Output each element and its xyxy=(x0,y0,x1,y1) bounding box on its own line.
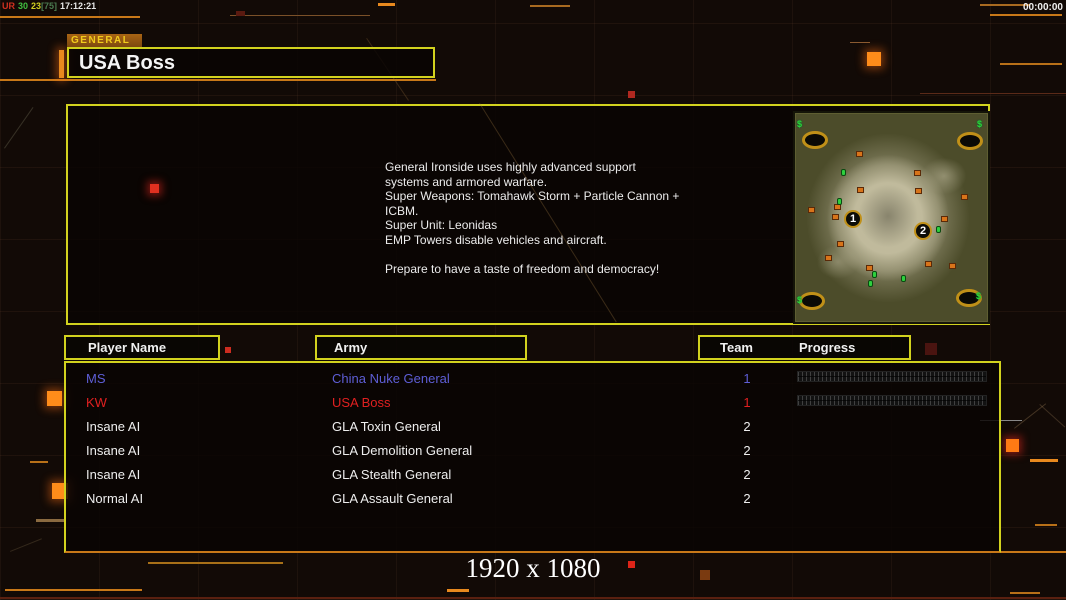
money-icon: $ xyxy=(797,296,802,305)
general-briefing-text: General Ironside uses highly advanced su… xyxy=(385,160,730,277)
army-cell: GLA Demolition General xyxy=(332,443,472,458)
deco-line xyxy=(1010,592,1040,594)
tech-building-icon xyxy=(872,271,877,278)
supply-building-icon xyxy=(857,187,864,193)
deco-square xyxy=(628,91,635,98)
player-rows: MS China Nuke General 1 KW USA Boss 1 In… xyxy=(66,363,999,551)
deco-square xyxy=(225,347,231,353)
start-position-oval xyxy=(802,131,828,149)
match-timer: 00:00:00 xyxy=(1023,2,1063,13)
supply-building-icon xyxy=(832,214,839,220)
resolution-label: 1920 x 1080 xyxy=(0,553,1066,584)
deco-line xyxy=(30,461,48,463)
player-table: MS China Nuke General 1 KW USA Boss 1 In… xyxy=(64,361,1001,553)
deco-line xyxy=(920,93,1066,94)
deco-line xyxy=(1000,63,1062,65)
table-row: Insane AI GLA Toxin General 2 xyxy=(66,415,999,439)
deco-line xyxy=(0,597,1066,599)
deco-diagonal xyxy=(10,538,42,552)
deco-line xyxy=(850,42,870,43)
supply-building-icon xyxy=(856,151,863,157)
start-position-oval xyxy=(957,132,983,150)
team-cell: 1 xyxy=(735,371,759,386)
supply-building-icon xyxy=(949,263,956,269)
column-header-label: Progress xyxy=(799,340,855,355)
player-name-cell: Insane AI xyxy=(86,419,140,434)
money-icon: $ xyxy=(976,292,981,301)
supply-building-icon xyxy=(915,188,922,194)
table-row: Normal AI GLA Assault General 2 xyxy=(66,487,999,511)
deco-square xyxy=(47,391,62,406)
deco-line xyxy=(447,589,469,592)
army-cell: GLA Toxin General xyxy=(332,419,441,434)
player-name-cell: MS xyxy=(86,371,106,386)
supply-building-icon xyxy=(866,265,873,271)
start-position-oval xyxy=(799,292,825,310)
player-name-cell: KW xyxy=(86,395,107,410)
table-row: MS China Nuke General 1 xyxy=(66,367,999,391)
supply-building-icon xyxy=(825,255,832,261)
table-row: Insane AI GLA Stealth General 2 xyxy=(66,463,999,487)
loading-progress-bar xyxy=(797,395,987,406)
minimap-marker: 2 xyxy=(914,222,932,240)
deco-diagonal xyxy=(1039,404,1065,427)
supply-building-icon xyxy=(941,216,948,222)
tech-building-icon xyxy=(901,275,906,282)
money-icon: $ xyxy=(797,120,802,129)
fps-label: UR xyxy=(2,1,15,11)
table-row: KW USA Boss 1 xyxy=(66,391,999,415)
loading-screen: { "status_bar": { "fps_counter": {"label… xyxy=(0,0,1066,600)
team-cell: 2 xyxy=(735,443,759,458)
deco-line xyxy=(530,5,570,7)
deco-line xyxy=(0,79,436,81)
deco-square xyxy=(867,52,881,66)
tech-building-icon xyxy=(837,198,842,205)
deco-line xyxy=(36,519,64,522)
supply-building-icon xyxy=(961,194,968,200)
deco-line xyxy=(990,14,1062,16)
general-tab-label: GENERAL xyxy=(67,34,142,48)
money-icon: $ xyxy=(977,120,982,129)
deco-line xyxy=(5,589,142,591)
team-cell: 2 xyxy=(735,467,759,482)
deco-square xyxy=(925,343,937,355)
debug-status-text: UR3023[75]17:12:21 xyxy=(2,1,99,11)
tech-building-icon xyxy=(841,169,846,176)
fps-value: 23 xyxy=(31,1,41,11)
column-header-player-name: Player Name xyxy=(64,335,220,360)
briefing-panel: General Ironside uses highly advanced su… xyxy=(66,104,990,325)
deco-line xyxy=(230,15,370,16)
fps-value: [75] xyxy=(41,1,57,11)
deco-square xyxy=(1006,439,1019,452)
supply-building-icon xyxy=(808,207,815,213)
deco-square xyxy=(236,11,245,16)
deco-line xyxy=(59,50,64,78)
army-cell: GLA Stealth General xyxy=(332,467,451,482)
supply-building-icon xyxy=(837,241,844,247)
deco-line xyxy=(378,3,395,6)
team-cell: 2 xyxy=(735,491,759,506)
player-name-cell: Insane AI xyxy=(86,443,140,458)
table-row: Insane AI GLA Demolition General 2 xyxy=(66,439,999,463)
minimap-marker: 1 xyxy=(844,210,862,228)
player-name-cell: Insane AI xyxy=(86,467,140,482)
deco-square xyxy=(150,184,159,193)
fps-value: 30 xyxy=(18,1,28,11)
tech-building-icon xyxy=(936,226,941,233)
tech-building-icon xyxy=(868,280,873,287)
column-header-label: Player Name xyxy=(88,340,166,355)
supply-building-icon xyxy=(925,261,932,267)
loading-progress-bar xyxy=(797,371,987,382)
deco-line xyxy=(1035,524,1057,526)
deco-line xyxy=(0,16,140,18)
clock-text: 17:12:21 xyxy=(60,1,96,11)
supply-building-icon xyxy=(914,170,921,176)
column-header-team-progress: Team Progress xyxy=(698,335,911,360)
army-cell: China Nuke General xyxy=(332,371,450,386)
army-cell: GLA Assault General xyxy=(332,491,453,506)
team-cell: 2 xyxy=(735,419,759,434)
selected-general-box: USA Boss xyxy=(67,47,435,78)
column-header-army: Army xyxy=(315,335,527,360)
deco-diagonal xyxy=(4,107,33,149)
minimap: $$$$12 xyxy=(795,113,988,322)
column-header-label: Team xyxy=(720,340,753,355)
team-cell: 1 xyxy=(735,395,759,410)
page-title: USA Boss xyxy=(79,52,175,75)
player-name-cell: Normal AI xyxy=(86,491,143,506)
deco-line xyxy=(1030,459,1058,462)
army-cell: USA Boss xyxy=(332,395,391,410)
column-header-label: Army xyxy=(334,340,367,355)
